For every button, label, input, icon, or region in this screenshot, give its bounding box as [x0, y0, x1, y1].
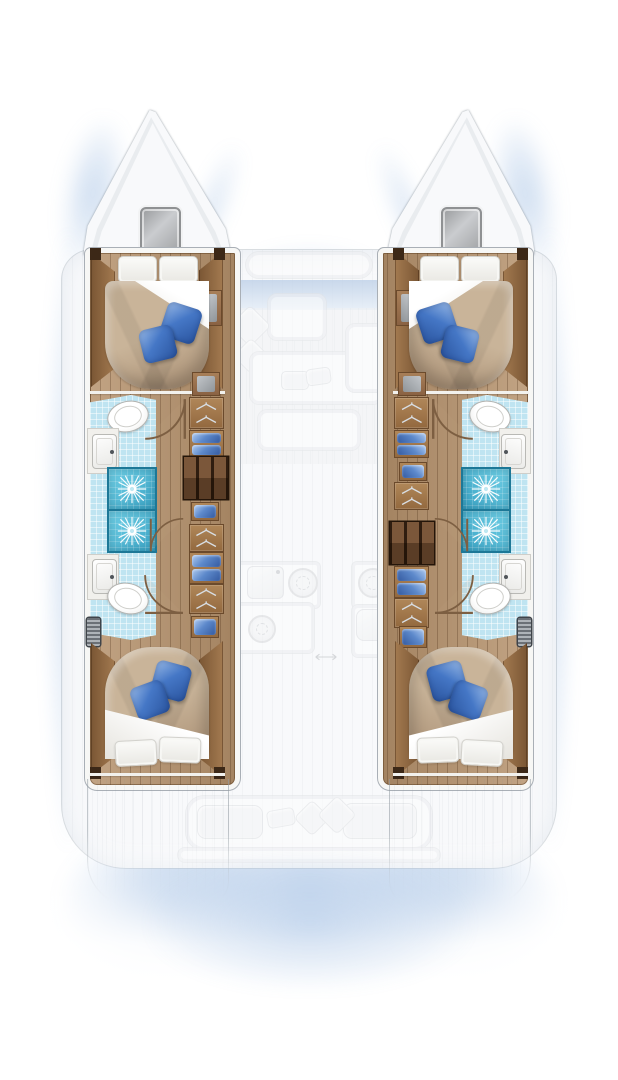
galley-sink	[247, 566, 284, 599]
blue-linen	[397, 583, 426, 595]
wardrobe-hangers	[190, 398, 223, 428]
blue-linen	[397, 569, 426, 581]
saloon-cushion	[306, 367, 331, 385]
saloon-table	[268, 294, 326, 340]
nightstand-locker	[400, 627, 426, 647]
blue-linen	[194, 619, 216, 635]
wardrobe-hangers	[190, 525, 223, 551]
bulkhead-wall	[393, 773, 528, 776]
galley-island-circle	[248, 615, 276, 643]
bulkhead-wall	[90, 773, 225, 776]
blue-linen	[402, 629, 424, 645]
vent-grille-icon	[87, 618, 100, 646]
hanger-icon	[397, 615, 425, 624]
corner-post	[214, 248, 225, 260]
corner-post	[517, 248, 528, 260]
hanger-icon	[192, 402, 220, 411]
wardrobe-hangers	[190, 585, 223, 613]
vent-grille-icon	[518, 618, 531, 646]
blue-linen	[192, 569, 221, 581]
white-pillow	[118, 256, 157, 283]
step-tread	[390, 522, 434, 543]
linen-locker	[192, 503, 218, 520]
hull-port	[85, 115, 230, 905]
hanger-icon	[192, 588, 220, 597]
hanger-icon	[192, 601, 220, 610]
shower-drain-icon	[471, 474, 501, 504]
hull-starboard	[388, 115, 533, 905]
stove-burner-icon	[288, 568, 318, 598]
linen-locker	[395, 567, 428, 597]
white-pillow	[159, 256, 198, 283]
step-tread	[390, 543, 434, 564]
blue-linen	[192, 445, 221, 455]
saloon-ottoman	[258, 410, 360, 450]
linen-locker	[190, 431, 223, 457]
white-pillow	[159, 736, 202, 763]
inner-cabinet	[193, 373, 219, 395]
blue-linen	[402, 465, 424, 478]
hanger-icon	[397, 402, 425, 411]
blue-linen	[397, 433, 426, 443]
door-arc-icon	[143, 397, 187, 441]
linen-locker	[400, 463, 426, 480]
wardrobe-hangers	[395, 483, 428, 509]
hanger-icon	[397, 486, 425, 495]
shower-drain-icon	[117, 474, 147, 504]
saloon-cushion	[282, 372, 308, 389]
door-arc-icon	[431, 397, 475, 441]
white-pillow	[461, 256, 500, 283]
hanger-icon	[397, 415, 425, 424]
sink	[92, 434, 117, 469]
door-arc-icon	[149, 517, 185, 553]
wardrobe-hangers	[395, 398, 428, 428]
hanger-icon	[397, 602, 425, 611]
linen-locker	[395, 431, 428, 457]
door-arc-icon	[433, 573, 475, 615]
hanger-icon	[397, 497, 425, 506]
shower-stall	[107, 467, 157, 511]
door-arc-icon	[433, 517, 469, 553]
step-tread	[184, 478, 228, 499]
white-pillow	[460, 739, 503, 767]
dimension-arrow-icon	[312, 652, 340, 662]
watercolor-wash-stern	[150, 858, 470, 988]
door-arc-icon	[143, 573, 185, 615]
wardrobe-hangers	[395, 599, 428, 627]
white-pillow	[417, 736, 460, 763]
inner-cabinet	[399, 373, 425, 395]
companionway-steps	[390, 522, 434, 564]
blue-linen	[192, 555, 221, 567]
step-tread	[184, 457, 228, 478]
nightstand-locker	[192, 617, 218, 637]
shower-stall	[461, 467, 511, 511]
foredeck-seat	[246, 252, 372, 278]
hanger-icon	[192, 415, 220, 424]
corner-post	[393, 248, 404, 260]
hanger-icon	[192, 539, 220, 548]
corner-post	[90, 248, 101, 260]
companionway-steps	[184, 457, 228, 499]
shower-drain-icon	[471, 516, 501, 546]
blue-linen	[397, 445, 426, 455]
catamaran-floor-plan	[0, 0, 618, 1080]
blue-linen	[192, 433, 221, 443]
white-pillow	[114, 739, 157, 767]
white-pillow	[420, 256, 459, 283]
linen-locker	[190, 553, 223, 583]
hanger-icon	[192, 528, 220, 537]
blue-linen	[194, 505, 216, 518]
sink	[501, 434, 526, 469]
shower-drain-icon	[117, 516, 147, 546]
